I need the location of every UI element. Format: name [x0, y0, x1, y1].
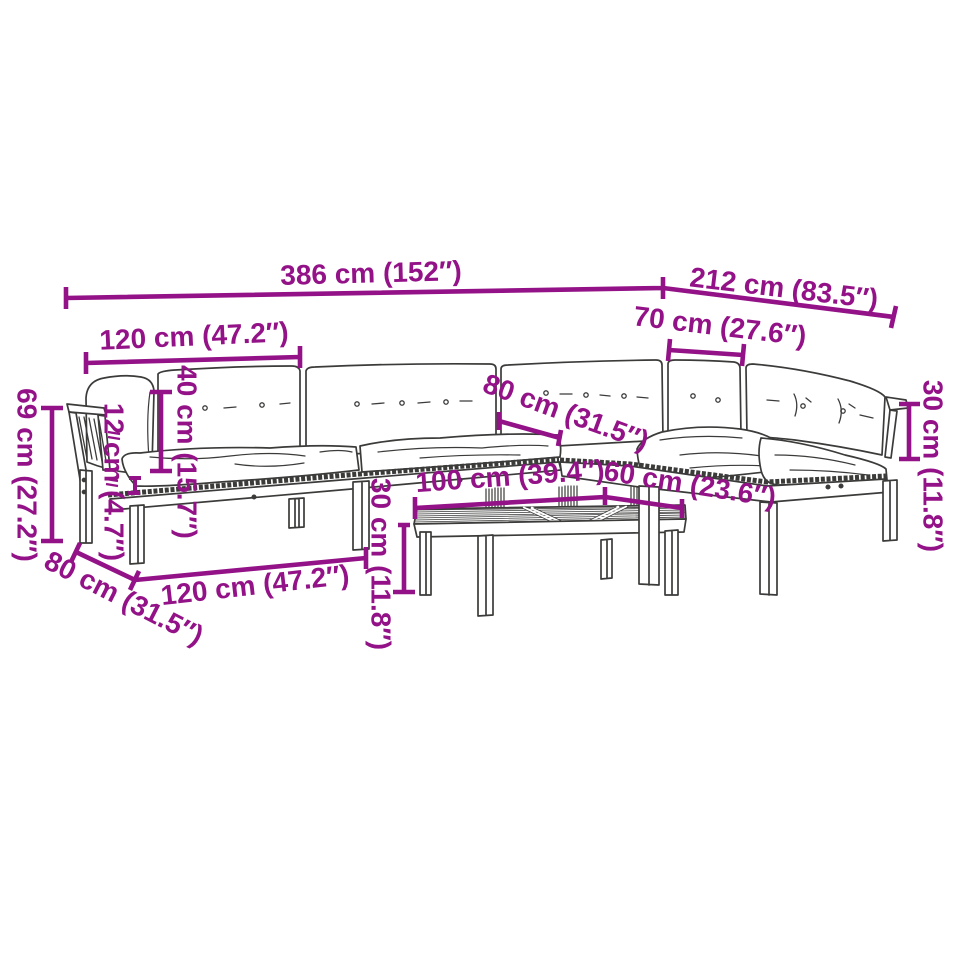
svg-text:30 cm (11.8″): 30 cm (11.8″) [366, 478, 397, 650]
svg-text:12 cm (4.7″): 12 cm (4.7″) [99, 403, 130, 561]
svg-text:69 cm (27.2″): 69 cm (27.2″) [12, 388, 43, 562]
svg-text:30 cm (11.8″): 30 cm (11.8″) [918, 380, 949, 552]
svg-text:40 cm (15.7″): 40 cm (15.7″) [172, 365, 203, 539]
svg-text:386 cm (152″): 386 cm (152″) [280, 255, 462, 291]
